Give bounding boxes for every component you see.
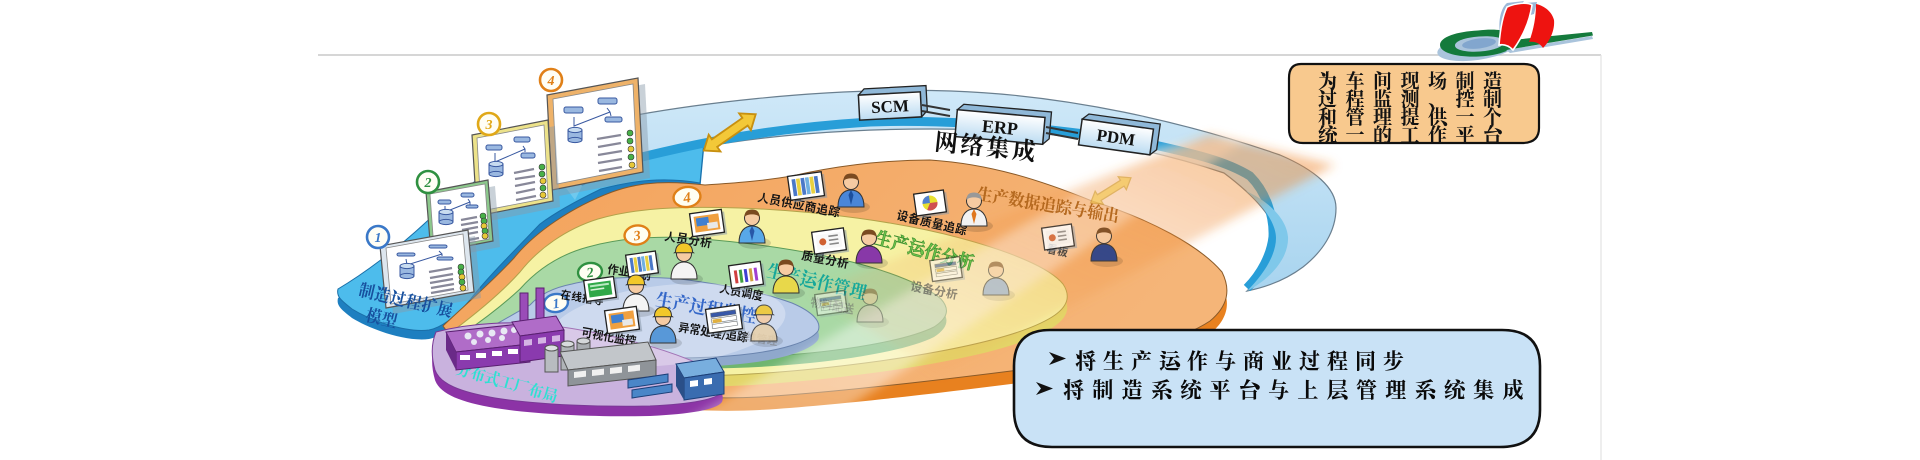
svg-text:SCM: SCM: [871, 96, 910, 117]
svg-text:3: 3: [485, 118, 493, 133]
svg-text:1: 1: [375, 231, 382, 246]
svg-text:ERP: ERP: [981, 116, 1019, 139]
svg-text:2: 2: [424, 176, 432, 191]
svg-text:4: 4: [547, 74, 555, 89]
